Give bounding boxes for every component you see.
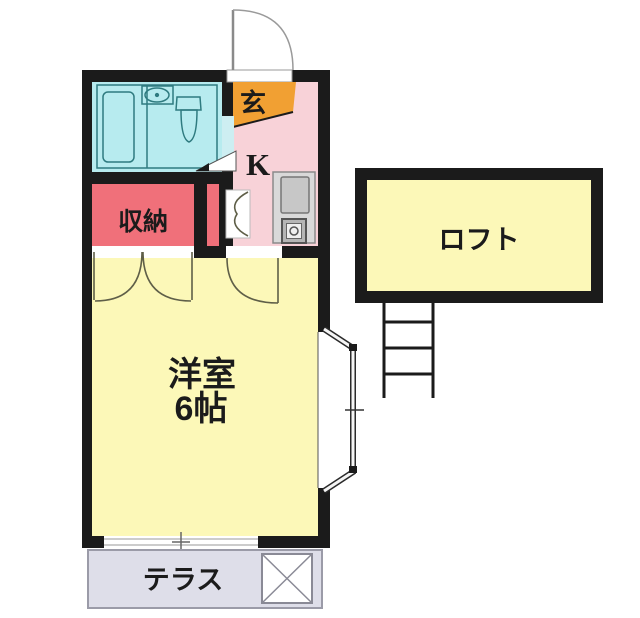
entrance-label: 玄 (240, 88, 266, 118)
main-room-label: 洋室 (168, 355, 236, 394)
bay-window-post (349, 344, 357, 351)
storage-label: 収納 (118, 207, 168, 236)
kitchen-label: K (246, 147, 270, 182)
floorplan-canvas: 玄 K 収納 洋室 6帖 ロフト テラス (0, 0, 640, 618)
bay-window-opening (317, 332, 330, 488)
washbasin-drain (156, 94, 159, 97)
entrance-door-sill (227, 70, 292, 82)
floorplan-drawing: 玄 K 収納 洋室 6帖 ロフト テラス (0, 0, 640, 618)
stove-burner-frame (287, 224, 302, 239)
storage-side-strip (207, 184, 219, 246)
loft-label: ロフト (439, 225, 520, 255)
folding-door-panel (226, 190, 250, 238)
bay-window-post (349, 466, 357, 473)
kitchen-sink-icon (281, 177, 309, 213)
room-door-opening (226, 246, 282, 258)
bathroom-door-opening (222, 116, 234, 158)
terrace-label: テラス (143, 565, 223, 595)
main-room-size-label: 6帖 (175, 390, 228, 428)
terrace-equipment-box (262, 554, 312, 603)
